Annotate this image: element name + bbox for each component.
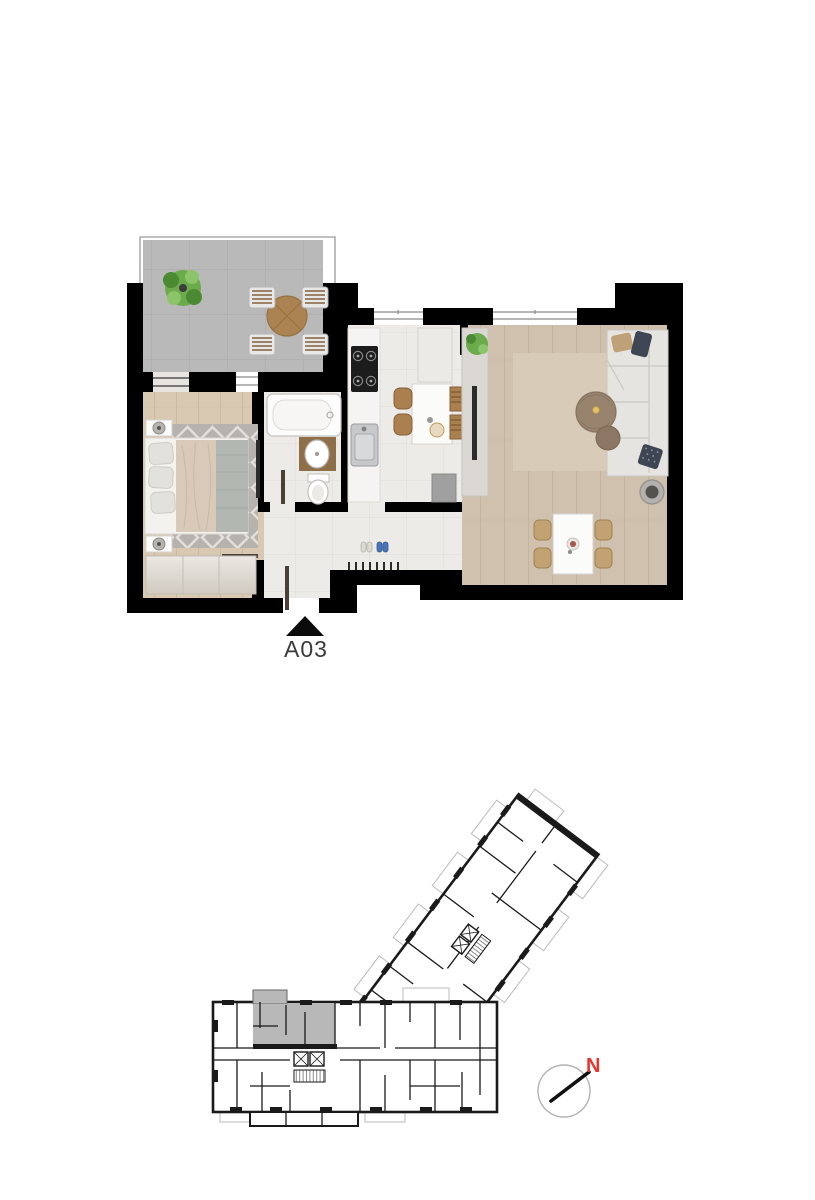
- kitchen-sink: [351, 424, 378, 466]
- island-decor: [430, 423, 444, 437]
- bedroom-small-window: [236, 372, 258, 392]
- plant-icon: [466, 333, 488, 355]
- pillows: [148, 442, 175, 513]
- terrace-door: [150, 372, 192, 392]
- compass-icon: [538, 1065, 590, 1117]
- floor-planter: [640, 480, 664, 504]
- toilet: [308, 474, 329, 504]
- bottom-annex: [250, 1112, 358, 1126]
- stairs-icon: [294, 1070, 325, 1082]
- apartment-plan: [127, 237, 683, 613]
- compass-north-label: N: [586, 1055, 600, 1078]
- wardrobe: [146, 556, 256, 594]
- kitchen-appliance: [432, 474, 456, 502]
- highlighted-unit: [253, 990, 337, 1049]
- kitchen-window: [374, 308, 423, 325]
- floorplan-drawing: [0, 0, 815, 1200]
- living-tv: [472, 386, 477, 460]
- blanket: [216, 440, 248, 532]
- key-plan-left-wing: [213, 988, 497, 1126]
- key-plan: [213, 775, 618, 1126]
- entrance-arrow-icon: [286, 616, 324, 636]
- floorplan-page: A03 N: [0, 0, 815, 1200]
- hob-icon: [351, 346, 378, 392]
- bedroom: [145, 420, 260, 594]
- living-window: [493, 308, 577, 325]
- sofa: [607, 330, 668, 476]
- duvet: [176, 440, 218, 532]
- entrance-door: [285, 566, 289, 610]
- bathroom-door: [281, 470, 285, 504]
- tall-cabinet: [418, 328, 452, 382]
- bedroom-tv: [256, 440, 260, 498]
- unit-label: A03: [268, 636, 344, 663]
- plant-icon: [163, 270, 202, 306]
